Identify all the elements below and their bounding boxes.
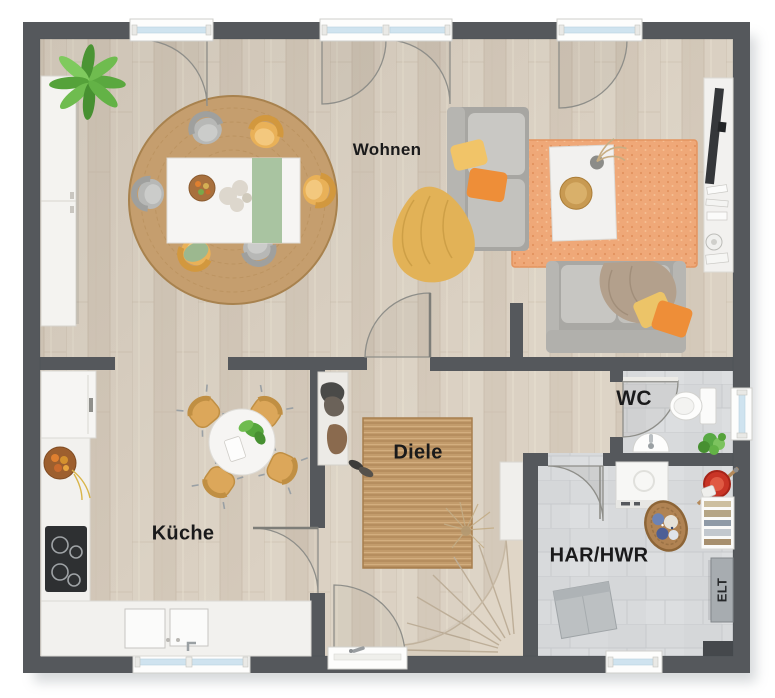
fridge	[41, 371, 96, 438]
tv-lowboard	[704, 78, 733, 272]
window-har	[606, 651, 662, 673]
pillow-orange	[466, 167, 508, 203]
floor-plan: Wohnen Küche Diele WC HAR/HWR ELT	[0, 0, 775, 698]
sofa	[546, 261, 694, 353]
kitchen-table	[209, 409, 275, 475]
dining-table	[167, 158, 300, 243]
utility-shelf	[701, 497, 734, 549]
stair-wall-panel	[500, 462, 523, 540]
room-label-wohnen: Wohnen	[353, 140, 422, 160]
room-label-wc: WC	[616, 387, 652, 411]
room-label-elt: ELT	[715, 578, 730, 603]
window-top-2	[320, 19, 452, 41]
room-label-diele: Diele	[393, 442, 442, 465]
hallway-rug	[363, 418, 472, 568]
tall-cabinet	[41, 76, 79, 326]
window-wc	[731, 388, 752, 440]
room-label-kueche: Küche	[152, 523, 215, 546]
window-top-1	[130, 19, 213, 41]
entrance-door	[328, 646, 407, 669]
table-runner	[252, 158, 282, 243]
fruit-bowl	[189, 175, 215, 201]
storage-box	[553, 582, 616, 639]
cooktop	[45, 526, 87, 592]
floorplan-canvas	[0, 0, 775, 698]
fruit-bowl-kitchen	[44, 447, 76, 479]
room-label-har-hwr: HAR/HWR	[550, 545, 649, 568]
window-top-3	[557, 19, 642, 41]
